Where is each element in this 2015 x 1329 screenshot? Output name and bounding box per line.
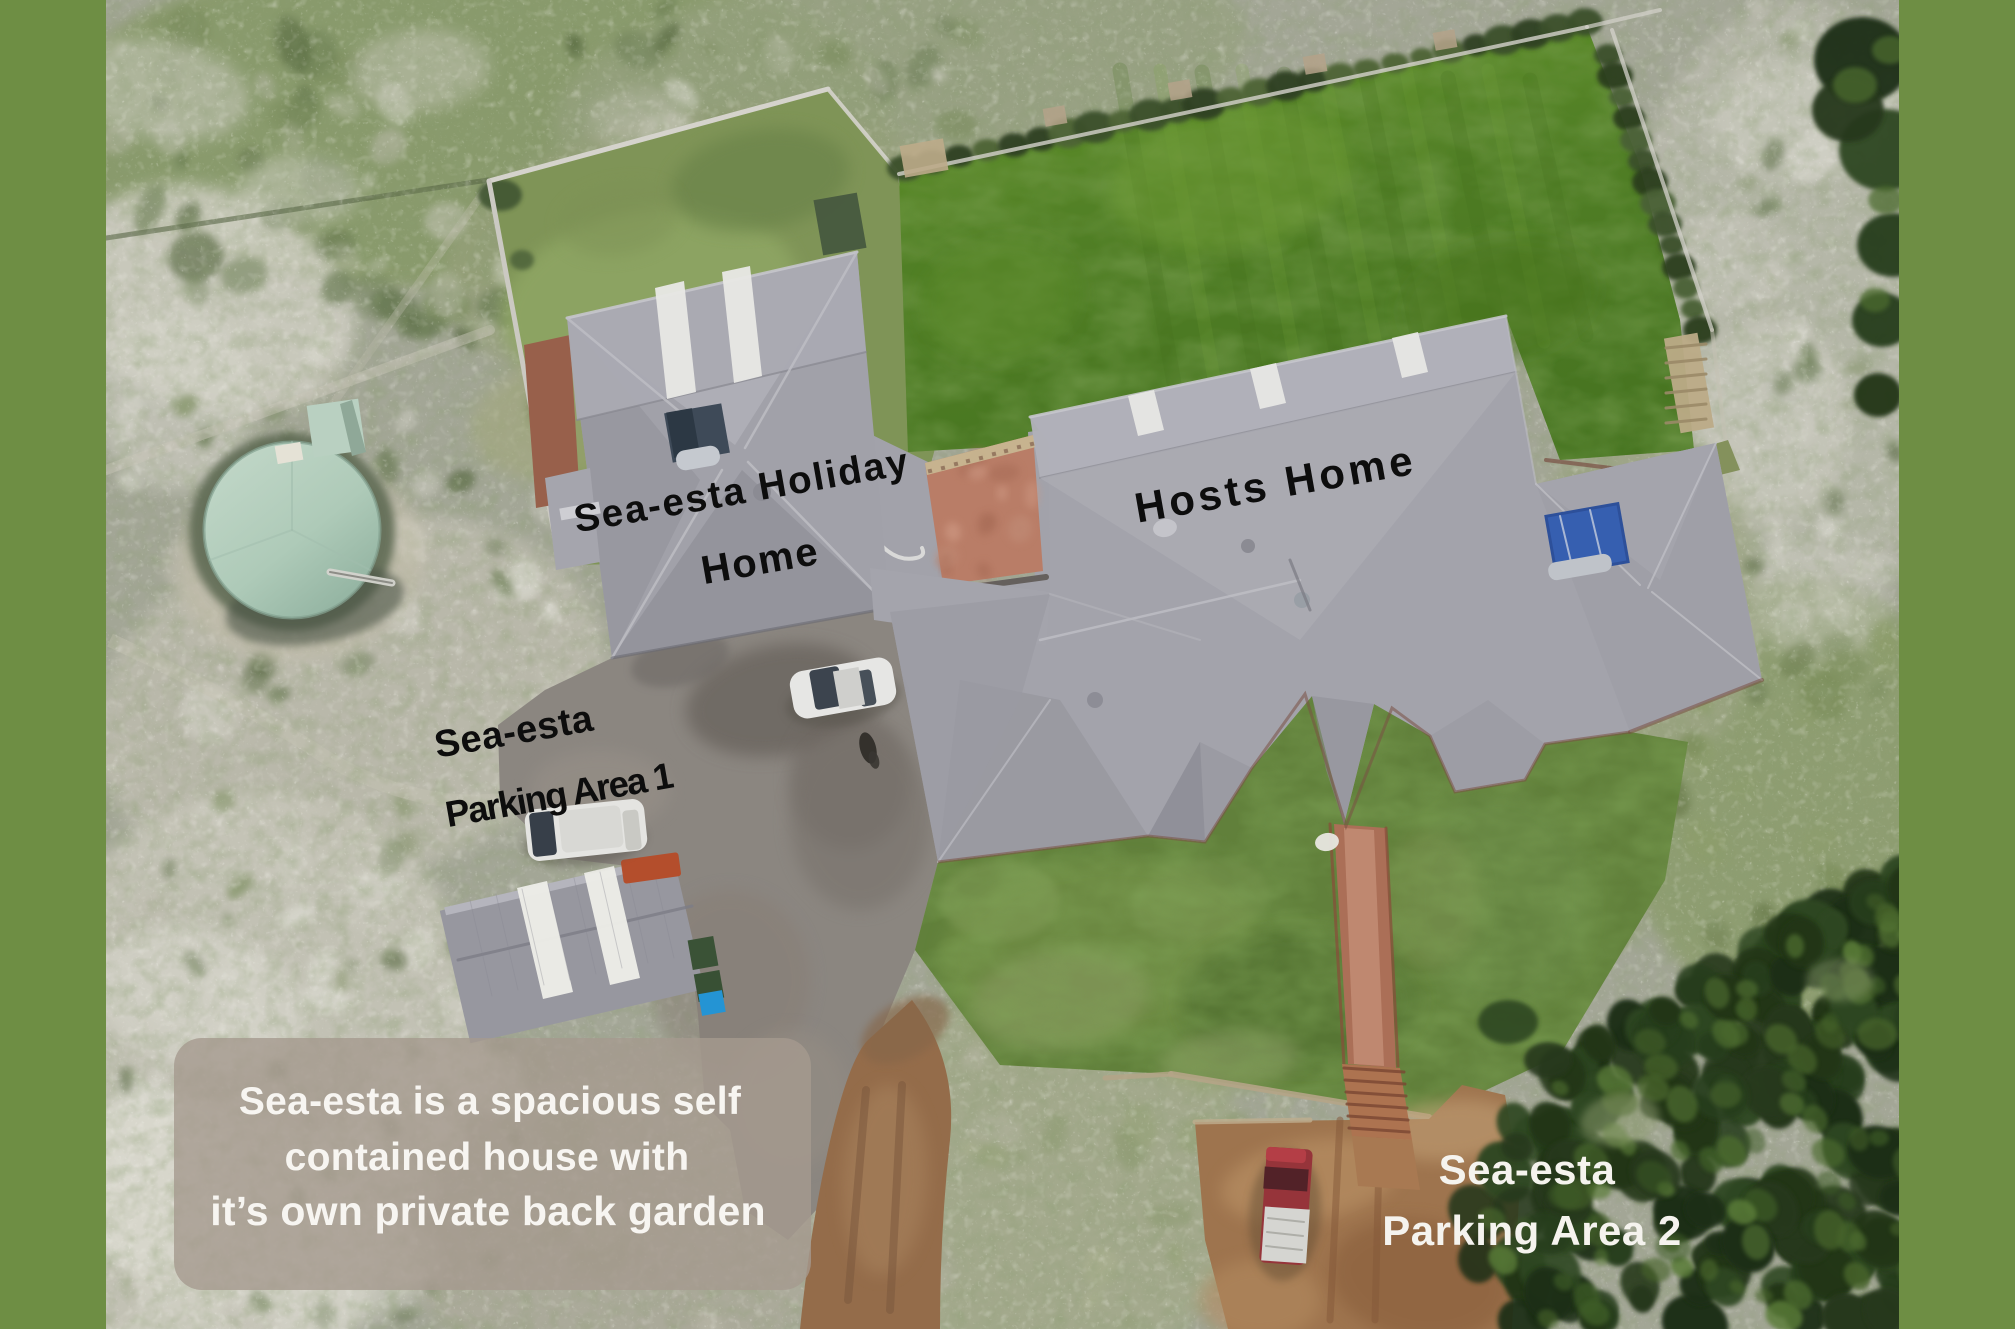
svg-text:Sea-esta: Sea-esta (1439, 1146, 1616, 1193)
svg-text:it’s own private back garden: it’s own private back garden (210, 1188, 765, 1234)
svg-text:Parking Area 2: Parking Area 2 (1382, 1207, 1682, 1254)
svg-text:Sea-esta is a spacious self: Sea-esta is a spacious self (239, 1080, 742, 1123)
svg-text:contained house with: contained house with (285, 1136, 690, 1179)
